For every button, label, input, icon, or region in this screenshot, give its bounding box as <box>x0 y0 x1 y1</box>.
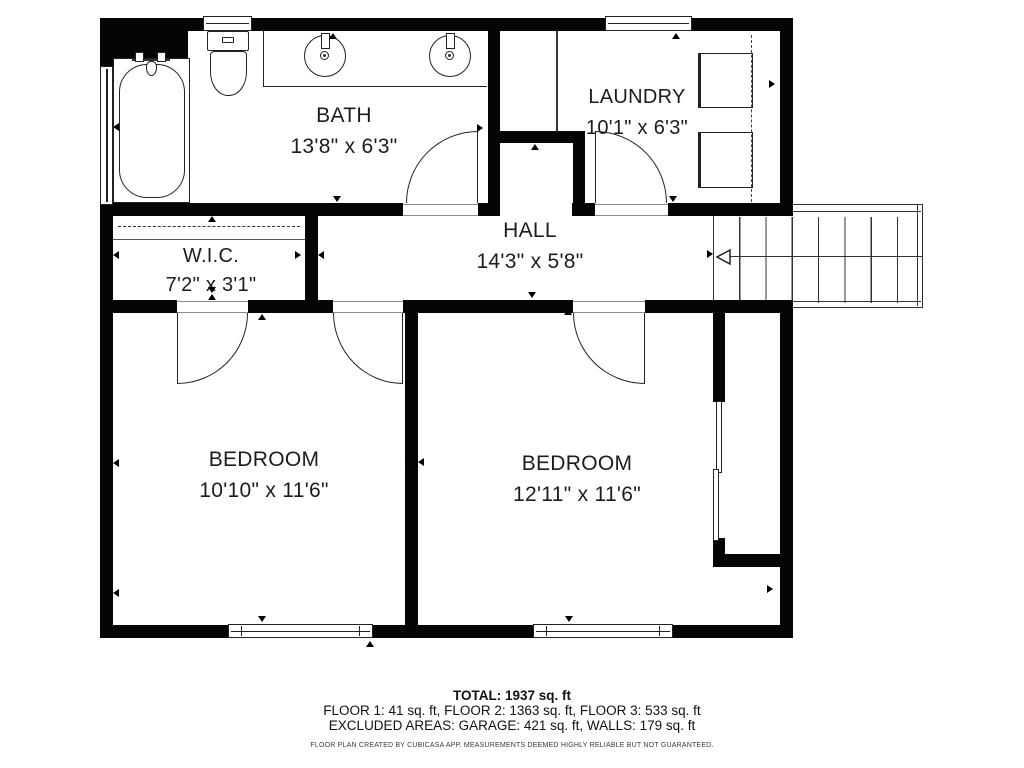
dimension-marker-icon <box>208 287 216 293</box>
room-name: BEDROOM <box>513 448 641 479</box>
sliding-door-panel <box>716 401 722 473</box>
floor-plan: BATH 13'8" x 6'3" LAUNDRY 10'1" x 6'3" H… <box>0 0 1024 768</box>
disclaimer: FLOOR PLAN CREATED BY CUBICASA APP. MEAS… <box>0 742 1024 749</box>
dimension-marker-icon <box>333 196 341 202</box>
wall-right-upper <box>780 18 793 210</box>
wall-bath-right <box>488 31 500 203</box>
toilet-bowl <box>210 51 247 96</box>
excluded-areas: EXCLUDED AREAS: GARAGE: 421 sq. ft, WALL… <box>0 719 1024 734</box>
door-swing-bedroom1 <box>333 313 403 384</box>
dimension-marker-icon <box>208 294 216 300</box>
total-area: TOTAL: 1937 sq. ft <box>0 688 1024 704</box>
dimension-marker-icon <box>669 196 677 202</box>
room-label-bath: BATH 13'8" x 6'3" <box>290 100 397 162</box>
laundry-dashed-line <box>751 35 752 202</box>
dimension-marker-icon <box>767 585 773 593</box>
doorway-wic <box>177 301 248 313</box>
dimension-marker-icon <box>564 309 572 315</box>
room-label-hall: HALL 14'3" x 5'8" <box>476 215 583 277</box>
wall-segment <box>645 300 793 313</box>
room-name: BATH <box>290 100 397 131</box>
dimension-marker-icon <box>329 33 337 39</box>
window-bath-left <box>100 66 113 205</box>
wall-segment <box>100 203 403 216</box>
room-dimensions: 12'11" x 11'6" <box>513 479 641 510</box>
stair-direction-arrow-icon <box>715 248 731 266</box>
tub-handle-icon <box>135 52 144 62</box>
wall-wic-right <box>305 216 318 300</box>
wall-bottom <box>100 625 793 638</box>
room-name: BEDROOM <box>199 444 329 475</box>
doorway-bedroom2 <box>573 301 645 313</box>
dimension-marker-icon <box>258 616 266 622</box>
dimension-marker-icon <box>208 216 216 222</box>
dimension-marker-icon <box>258 314 266 320</box>
doorway-laundry <box>595 204 668 216</box>
dimension-marker-icon <box>113 251 119 259</box>
sink-drain-dot <box>448 54 451 57</box>
door-swing-wic <box>177 313 248 384</box>
sink-faucet-icon <box>446 33 455 49</box>
door-swing-bath <box>406 131 478 203</box>
closet-shelf-line <box>113 239 305 240</box>
wall-closet-bottom <box>713 554 780 567</box>
wall-bedroom2-right-upper <box>713 313 725 402</box>
dimension-marker-icon <box>113 589 119 597</box>
window-bath-top <box>203 16 252 31</box>
room-name: LAUNDRY <box>586 82 688 113</box>
dimension-marker-icon <box>528 292 536 298</box>
tub-handle-icon <box>157 52 166 62</box>
room-dimensions: 13'8" x 6'3" <box>290 131 397 162</box>
door-swing-bedroom2 <box>573 313 645 384</box>
dimension-marker-icon <box>318 251 324 259</box>
area-summary: TOTAL: 1937 sq. ft FLOOR 1: 41 sq. ft, F… <box>0 688 1024 749</box>
washer-icon <box>698 53 753 108</box>
sliding-door-panel <box>713 469 719 541</box>
dryer-icon <box>698 132 753 188</box>
bathtub-icon <box>119 64 185 198</box>
wall-bath-corner-block <box>113 31 188 58</box>
room-dimensions: 10'10" x 11'6" <box>199 475 329 506</box>
wall-niche-right <box>573 143 585 203</box>
dimension-marker-icon <box>565 616 573 622</box>
dimension-marker-icon <box>295 251 301 259</box>
closet-rod-line <box>118 226 300 227</box>
dimension-marker-icon <box>366 641 374 647</box>
room-name: HALL <box>476 215 583 246</box>
room-label-laundry: LAUNDRY 10'1" x 6'3" <box>586 82 688 144</box>
dimension-marker-icon <box>707 250 713 258</box>
window-laundry-top <box>605 16 692 31</box>
window-bedroom1-bottom <box>228 624 373 638</box>
wall-segment <box>403 300 573 313</box>
window-bedroom2-bottom <box>533 624 673 638</box>
wall-segment <box>248 300 333 313</box>
room-label-bedroom2: BEDROOM 12'11" x 11'6" <box>513 448 641 510</box>
dimension-marker-icon <box>769 80 775 88</box>
room-name: W.I.C. <box>166 242 257 271</box>
wall-niche-top <box>500 131 585 143</box>
dimension-marker-icon <box>113 459 119 467</box>
dimension-marker-icon <box>477 124 483 132</box>
wall-bedroom-divider <box>405 313 418 625</box>
staircase <box>713 204 923 308</box>
room-label-bedroom1: BEDROOM 10'10" x 11'6" <box>199 444 329 506</box>
sink-drain-dot <box>323 54 326 57</box>
dimension-marker-icon <box>406 459 412 467</box>
doorway-bath <box>403 204 478 216</box>
toilet-flush-button <box>222 37 234 43</box>
wall-segment <box>668 203 793 216</box>
floor-areas: FLOOR 1: 41 sq. ft, FLOOR 2: 1363 sq. ft… <box>0 704 1024 719</box>
stair-direction-line <box>726 256 922 257</box>
doorway-bedroom1 <box>333 301 403 313</box>
wall-right-lower <box>780 302 793 638</box>
room-dimensions: 10'1" x 6'3" <box>586 113 688 144</box>
stair-treads-icon <box>714 217 919 303</box>
room-dimensions: 14'3" x 5'8" <box>476 246 583 277</box>
dimension-marker-icon <box>113 123 119 131</box>
dimension-marker-icon <box>531 144 539 150</box>
dimension-marker-icon <box>672 33 680 39</box>
dimension-marker-icon <box>418 458 424 466</box>
laundry-partition-line <box>556 31 558 131</box>
wall-segment <box>100 300 177 313</box>
